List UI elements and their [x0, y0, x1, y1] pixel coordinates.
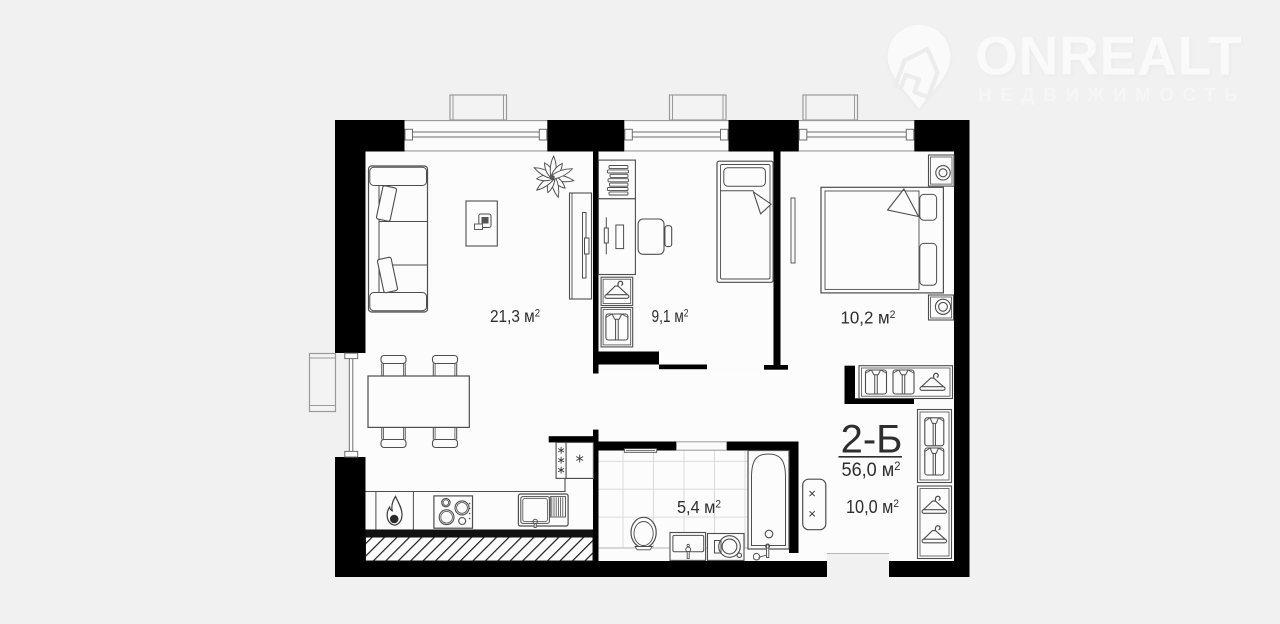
svg-text:9,1 м2: 9,1 м2 [652, 306, 689, 326]
svg-text:5,4 м2: 5,4 м2 [677, 497, 721, 517]
svg-text:56,0 м2: 56,0 м2 [842, 459, 901, 481]
svg-text:21,3 м2: 21,3 м2 [490, 306, 540, 326]
svg-text:НЕДВИЖИМОСТЬ: НЕДВИЖИМОСТЬ [978, 84, 1246, 105]
svg-text:10,2 м2: 10,2 м2 [841, 308, 896, 328]
svg-text:10,0 м2: 10,0 м2 [846, 496, 899, 517]
svg-text:2-Б: 2-Б [841, 418, 903, 462]
svg-text:ONREALT: ONREALT [975, 25, 1242, 87]
